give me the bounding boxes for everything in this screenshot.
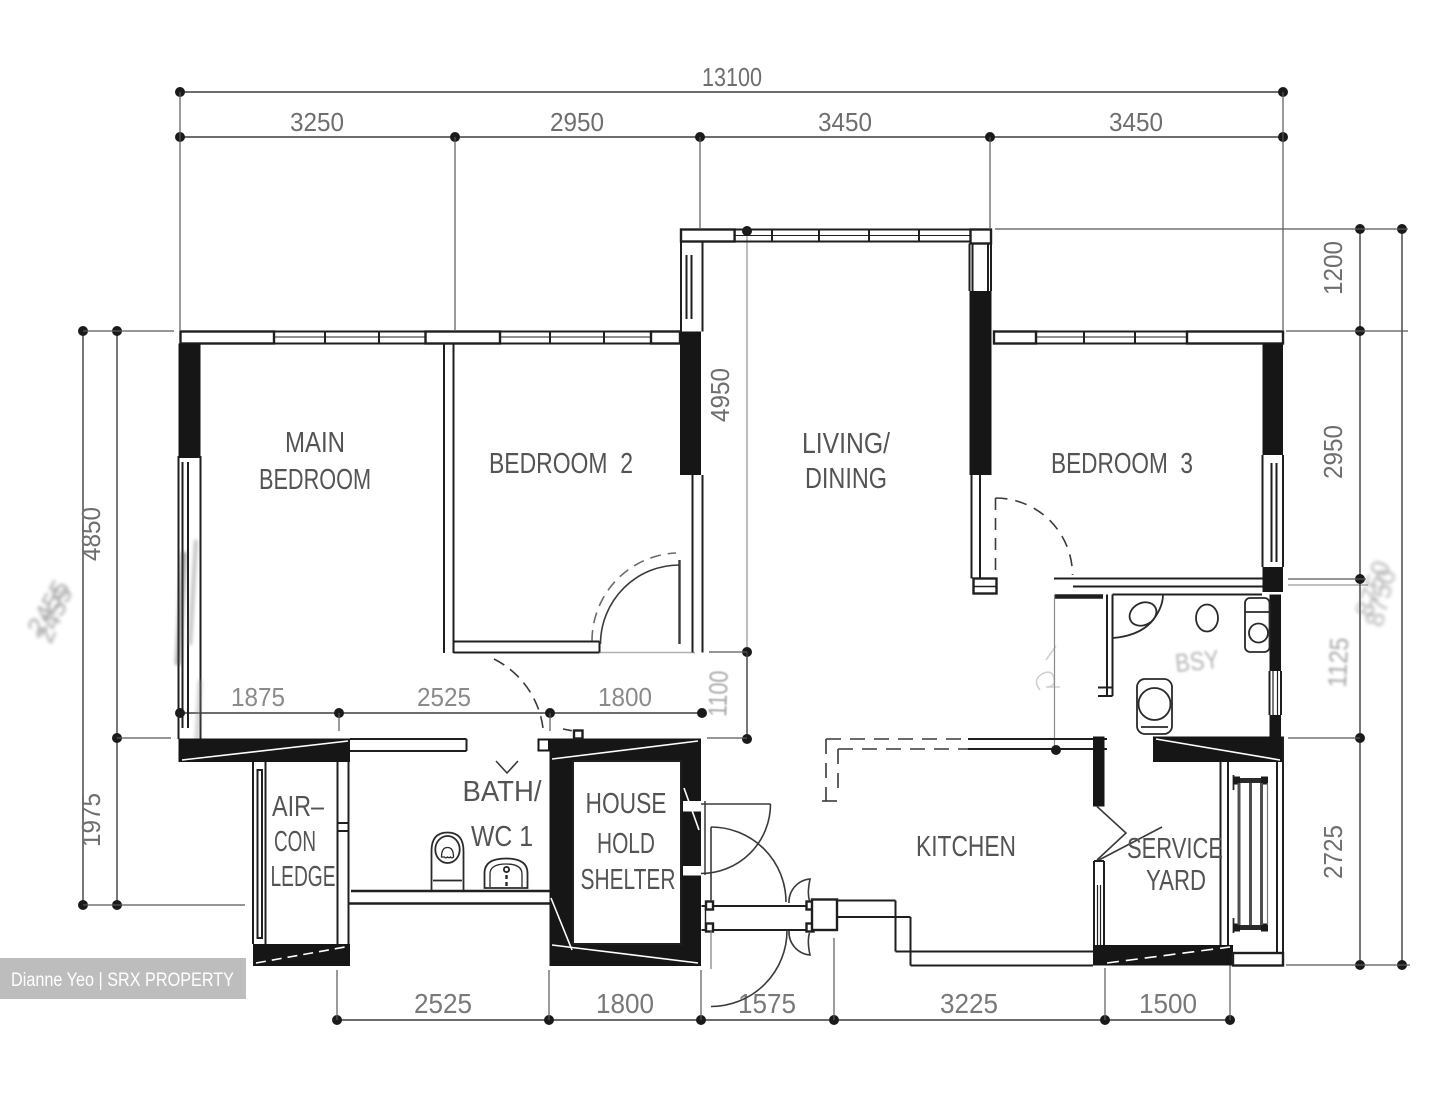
svg-text:DINING: DINING (805, 463, 887, 495)
svg-text:WC 1: WC 1 (471, 821, 533, 853)
svg-text:MAIN: MAIN (285, 427, 345, 459)
svg-text:1975: 1975 (76, 793, 106, 847)
svg-text:LEDGE: LEDGE (271, 861, 336, 893)
svg-text:4950: 4950 (705, 368, 735, 422)
svg-text:BEDROOM 2: BEDROOM 2 (489, 448, 633, 480)
svg-text:2950: 2950 (1318, 425, 1348, 479)
svg-text:3450: 3450 (1109, 107, 1163, 137)
svg-text:1100: 1100 (702, 670, 734, 717)
svg-text:4850: 4850 (76, 507, 106, 561)
svg-text:HOUSE: HOUSE (586, 788, 667, 820)
svg-text:Dianne Yeo | SRX PROPERTY: Dianne Yeo | SRX PROPERTY (11, 970, 234, 991)
svg-text:LIVING/: LIVING/ (802, 428, 891, 460)
svg-text:13100: 13100 (702, 62, 762, 92)
svg-text:2950: 2950 (550, 107, 604, 137)
svg-text:KITCHEN: KITCHEN (916, 831, 1016, 863)
svg-text:2525: 2525 (414, 988, 472, 1019)
svg-text:CON: CON (274, 826, 316, 858)
svg-text:HOLD: HOLD (597, 828, 655, 860)
svg-text:BEDROOM 3: BEDROOM 3 (1051, 448, 1193, 480)
svg-text:3250: 3250 (290, 107, 344, 137)
svg-text:2525: 2525 (417, 682, 471, 712)
svg-text:1125: 1125 (1322, 637, 1355, 689)
svg-text:SERVICE: SERVICE (1127, 833, 1223, 865)
svg-text:3225: 3225 (940, 988, 998, 1019)
svg-text:2725: 2725 (1318, 825, 1348, 879)
svg-text:1875: 1875 (231, 682, 285, 712)
svg-text:AIR–: AIR– (272, 791, 325, 823)
svg-text:1800: 1800 (598, 682, 652, 712)
svg-text:1800: 1800 (596, 988, 654, 1019)
svg-text:1200: 1200 (1318, 241, 1348, 295)
svg-text:BEDROOM: BEDROOM (259, 464, 371, 496)
svg-text:1500: 1500 (1139, 988, 1197, 1019)
svg-text:BSY: BSY (1174, 644, 1221, 678)
svg-text:SHELTER: SHELTER (581, 864, 676, 896)
svg-text:BATH/: BATH/ (463, 776, 543, 808)
svg-text:3450: 3450 (818, 107, 872, 137)
svg-text:1575: 1575 (738, 988, 796, 1019)
svg-text:YARD: YARD (1146, 865, 1206, 897)
